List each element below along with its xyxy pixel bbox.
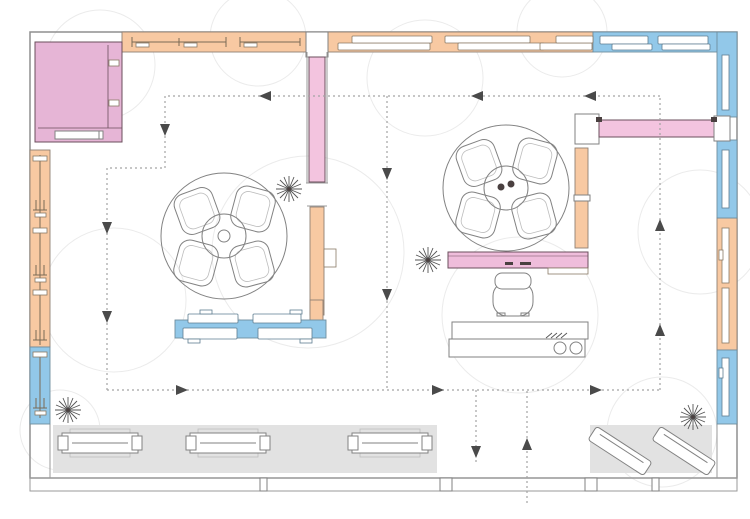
block-drawer <box>55 131 103 139</box>
bench <box>186 429 270 457</box>
door-jamb-right <box>585 478 597 491</box>
plant-icon <box>276 176 302 202</box>
arrow-up-entry <box>522 438 532 450</box>
arrow-up <box>655 324 665 336</box>
armchair <box>493 273 533 316</box>
door-jamb-left <box>440 478 452 491</box>
table-group-left <box>161 173 287 299</box>
display-benches-left <box>58 429 432 457</box>
direction-arrows <box>102 91 665 458</box>
table-group-right <box>443 125 569 251</box>
bench <box>58 429 142 457</box>
mid-partition-side-shelf <box>324 249 336 267</box>
partition-top-junction <box>306 32 328 57</box>
arrow-down <box>382 168 392 180</box>
blue-shelving <box>30 32 737 424</box>
chair <box>510 136 560 187</box>
storefront-sill <box>30 478 737 491</box>
chair <box>453 190 503 241</box>
table-center <box>218 230 230 242</box>
arrow-right <box>432 385 444 395</box>
stem-joint <box>574 195 590 201</box>
round-table <box>202 214 246 258</box>
right-room-partition <box>448 114 730 274</box>
right-partition-pink <box>599 120 714 137</box>
mid-partition-pink <box>309 57 325 182</box>
arrow-left <box>471 91 483 101</box>
arrow-left <box>259 91 271 101</box>
outer-wall <box>30 32 737 478</box>
arrow-left <box>584 91 596 101</box>
chair <box>227 239 277 290</box>
arrow-up <box>655 219 665 231</box>
faint-guide-circles <box>20 0 750 487</box>
arrow-down <box>102 311 112 323</box>
arrow-down-exit <box>471 446 481 458</box>
arrow-down <box>382 289 392 301</box>
window-mullion <box>652 478 659 491</box>
bench <box>348 429 432 457</box>
window-mullion <box>260 478 267 491</box>
floor-plan-canvas <box>0 0 750 519</box>
building-walls <box>30 32 737 491</box>
floor-plan-drawing <box>0 0 750 519</box>
counter-under-shelf <box>548 268 588 274</box>
plant-icon <box>55 397 81 423</box>
chair <box>509 191 559 242</box>
cash-desk <box>449 322 588 357</box>
arrow-down <box>160 124 170 136</box>
orange-shelving <box>30 32 737 350</box>
arrow-right <box>590 385 602 395</box>
arrow-right <box>176 385 188 395</box>
mid-shelf-connector-orange <box>310 300 323 322</box>
partition-t-junction <box>575 114 599 144</box>
round-table <box>484 166 528 210</box>
plants <box>55 176 706 430</box>
plant-icon <box>415 247 441 273</box>
pink-corner-block <box>35 42 122 142</box>
chair <box>171 238 221 289</box>
mid-partition-shelf-orange <box>310 207 324 315</box>
pink-counter <box>448 252 588 268</box>
chair <box>228 184 278 235</box>
